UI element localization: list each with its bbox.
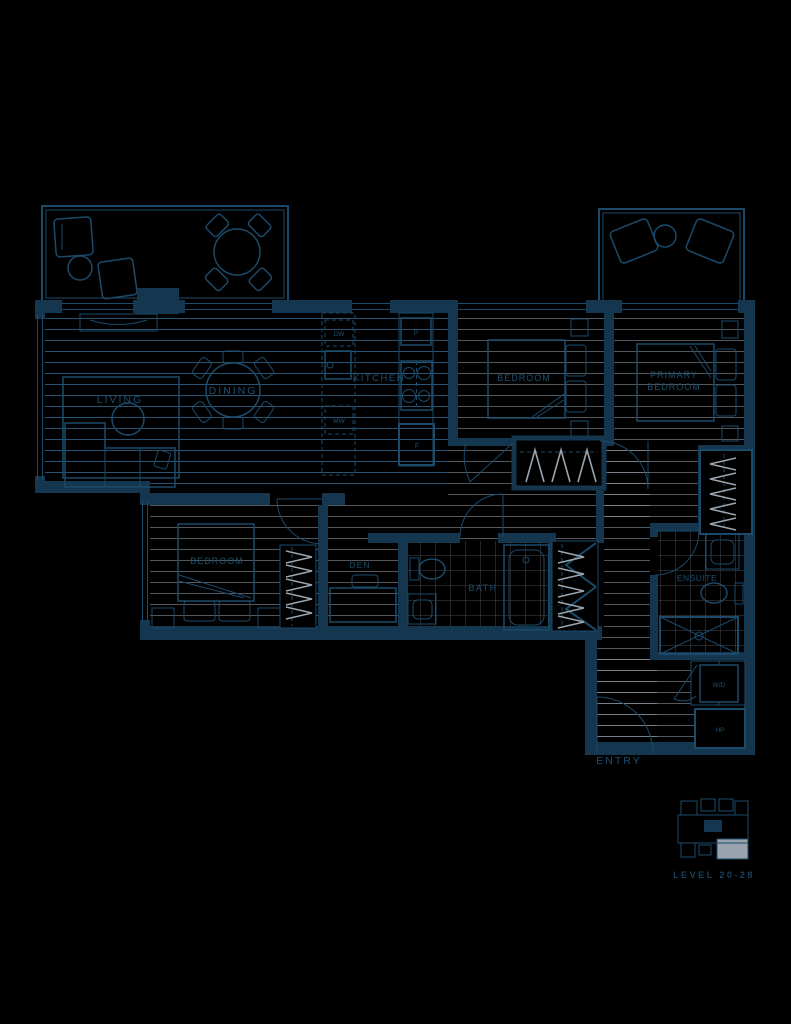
entry-label: ENTRY bbox=[596, 755, 641, 767]
outdoor-chair-icon bbox=[609, 218, 659, 265]
outdoor-chair-icon bbox=[685, 218, 735, 265]
window-segment bbox=[352, 300, 390, 313]
side-table-icon bbox=[654, 225, 676, 247]
bath-label: BATH bbox=[468, 583, 497, 593]
primary-bedroom-label-line1: PRIMARY bbox=[650, 370, 698, 380]
ensuite-label: ENSUITE bbox=[677, 573, 717, 583]
dining-label: DINING bbox=[209, 385, 258, 397]
closet-bifold-hall bbox=[552, 541, 598, 631]
entry-left-wall bbox=[585, 640, 597, 752]
dishwasher-label: DW bbox=[334, 331, 346, 338]
outdoor-table-icon bbox=[214, 229, 260, 275]
outdoor-chair-icon bbox=[205, 213, 230, 238]
bedroom-top-wall bbox=[140, 493, 270, 505]
bedroom-lower-label: BEDROOM bbox=[190, 556, 244, 566]
window-wall-left-living bbox=[38, 315, 43, 480]
balcony-top-right bbox=[599, 209, 744, 309]
keyplan-core bbox=[704, 820, 722, 832]
washer-dryer-label: W/D bbox=[713, 682, 726, 689]
window-segment bbox=[62, 300, 133, 313]
outdoor-chair-icon bbox=[248, 267, 273, 292]
microwave-label: MW bbox=[333, 418, 345, 425]
living-label: LIVING bbox=[97, 394, 143, 406]
keyplan-unit-highlight bbox=[717, 839, 748, 859]
walkin-closet bbox=[700, 450, 752, 534]
outdoor-chair-icon bbox=[204, 267, 229, 292]
utility-closets bbox=[691, 661, 745, 748]
den-bath-wall bbox=[398, 541, 408, 630]
kitchen-label: KITCHEN bbox=[353, 373, 405, 384]
kitchen-bedroom-wall bbox=[448, 313, 458, 446]
window-segment bbox=[458, 300, 586, 313]
pantry-label: P bbox=[414, 330, 418, 337]
bedroom-top-label: BEDROOM bbox=[497, 373, 551, 383]
floorplan-page: LIVING DINING KITCHEN BEDROOM PRIMARY BE… bbox=[0, 0, 791, 1024]
window-wall-left-bedroom bbox=[143, 502, 148, 622]
keyplan: LEVEL 20-28 bbox=[673, 799, 755, 880]
lounge-chair-icon bbox=[98, 258, 138, 300]
corridor-wall bbox=[596, 488, 604, 543]
closet-bedroom-lower bbox=[280, 545, 316, 628]
fridge-label: F bbox=[415, 443, 419, 450]
balcony-top-left bbox=[42, 206, 288, 314]
ensuite-left-wall bbox=[650, 575, 658, 652]
lower-bottom-wall bbox=[140, 626, 602, 640]
primary-bedroom-label-line2: BEDROOM bbox=[647, 382, 701, 392]
corridor-wood-floor-2 bbox=[604, 446, 650, 630]
keyplan-level-label: LEVEL 20-28 bbox=[673, 870, 755, 880]
lounge-chair-icon bbox=[54, 217, 94, 257]
window-segment bbox=[622, 300, 738, 313]
bedroom-divider-wall bbox=[604, 313, 614, 446]
balcony-outline bbox=[599, 209, 744, 309]
den-label: DEN bbox=[350, 560, 371, 570]
window-segment bbox=[185, 300, 272, 313]
closet-hall bbox=[514, 438, 604, 488]
heat-pump-label: HP bbox=[715, 727, 724, 734]
side-table-icon bbox=[68, 256, 92, 280]
bedroom-den-wall bbox=[318, 505, 328, 630]
floorplan-drawing: LIVING DINING KITCHEN BEDROOM PRIMARY BE… bbox=[0, 0, 791, 1024]
